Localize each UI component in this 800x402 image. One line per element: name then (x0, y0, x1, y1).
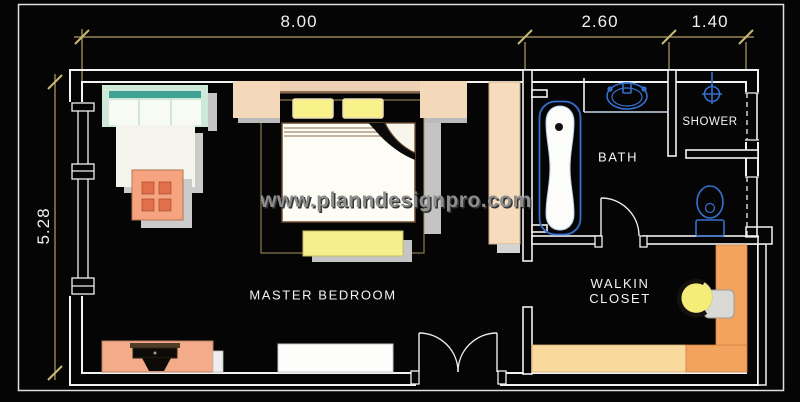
right-wall-lower-jog (758, 244, 766, 385)
pillow-left (293, 99, 333, 118)
foot-bench (303, 231, 403, 256)
toilet (696, 186, 724, 236)
room-label-bath: BATH (598, 150, 638, 165)
room-label-walkin-closet: WALKIN CLOSET (589, 276, 651, 306)
pillow-right (343, 99, 383, 118)
dimension-label-top-3: 1.40 (691, 12, 728, 32)
dimension-label-top-2: 2.60 (581, 12, 618, 32)
bath-closet-wall-right (643, 236, 758, 244)
bath-closet-wall-left (532, 236, 601, 244)
shower-drain-icon (702, 72, 722, 104)
tub-wall-stub-top (532, 90, 547, 97)
room-label-master-bedroom: MASTER BEDROOM (249, 288, 396, 303)
bedroom-closet-wall-stub (523, 307, 532, 374)
floor-plan: 8.00 2.60 1.40 5.28 MASTER BEDROOM BATH … (0, 0, 800, 402)
dresser (278, 344, 393, 372)
coffee-table (132, 170, 192, 228)
dimension-label-left: 5.28 (34, 207, 54, 244)
bed (233, 81, 467, 262)
room-label-shower: SHOWER (682, 116, 737, 128)
walkin-closet-line2: CLOSET (589, 291, 651, 306)
bath-door (601, 198, 639, 236)
walkin-closet-line1: WALKIN (591, 276, 650, 291)
bedroom-bath-wall (523, 70, 532, 261)
tv-console (102, 341, 223, 372)
tub-drain (555, 123, 563, 131)
shower-left-wall (668, 70, 676, 156)
nightstand-right (420, 81, 467, 118)
nightstand-left (233, 81, 280, 118)
dimension-label-top-1: 8.00 (280, 12, 317, 32)
shower-bottom-wall (686, 150, 758, 158)
washbasin (584, 83, 668, 112)
bed-shadow (424, 110, 441, 234)
wardrobe (489, 82, 520, 253)
sofa (102, 85, 217, 131)
watermark: www.planndesignpro.com (260, 189, 532, 213)
bathtub (540, 102, 581, 235)
tv-icon (130, 343, 180, 348)
entry-double-door (419, 333, 497, 372)
left-window-opening (66, 102, 86, 296)
